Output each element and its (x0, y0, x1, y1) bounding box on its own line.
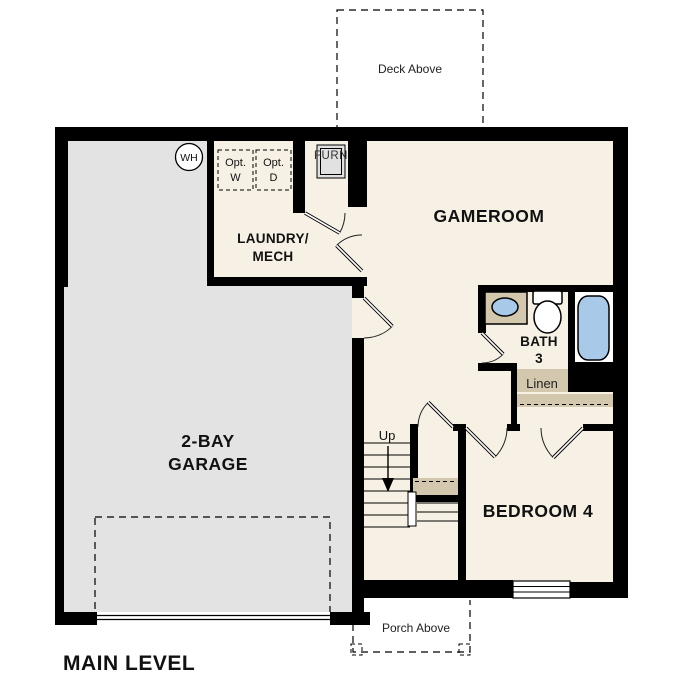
wall-laundry-left (207, 139, 214, 286)
understair-shelf (413, 478, 458, 495)
bedroom-window (513, 581, 570, 598)
bathtub-icon (578, 296, 609, 360)
garage-label-line2: GARAGE (168, 454, 248, 474)
furnace-label: FURN (314, 150, 348, 162)
wall-understair-bottom (410, 495, 458, 502)
wall-right (613, 127, 628, 598)
wall-furnace-left (293, 139, 305, 213)
bath3-label-line2: 3 (535, 351, 543, 366)
opt-washer-line2: W (230, 172, 241, 184)
opt-dryer-line2: D (270, 172, 278, 184)
wall-top (55, 127, 628, 141)
sink-icon (492, 298, 518, 316)
toilet-bowl (534, 301, 561, 333)
wall-garage-bottom-left (55, 612, 97, 625)
wall-tub-divider (568, 285, 575, 362)
wall-left-lower (55, 283, 64, 625)
structural-mass (568, 362, 613, 392)
stair-rail (408, 492, 416, 526)
gameroom-label: GAMEROOM (434, 206, 545, 226)
opt-washer-line1: Opt. (225, 157, 246, 169)
wall-bottom-bedroom (570, 582, 628, 598)
wall-garage-right-upper (352, 283, 364, 298)
wall-furnace-right (348, 139, 367, 207)
wall-laundry-bottom (207, 277, 367, 286)
wall-bedroom-top-stub2 (583, 424, 613, 431)
wall-bottom-entry (358, 580, 513, 598)
wall-left-upper (55, 127, 68, 287)
up-label: Up (379, 428, 396, 443)
plan-title: MAIN LEVEL (63, 652, 195, 675)
wall-linen-left (511, 363, 517, 431)
laundry-label-line1: LAUNDRY/ (237, 231, 309, 246)
porch-label: Porch Above (382, 621, 450, 635)
floor-plan: Deck Above (0, 0, 687, 687)
bedroom4-label: BEDROOM 4 (483, 501, 593, 521)
wall-garage-right-lower (352, 338, 364, 625)
linen-label: Linen (526, 376, 558, 391)
wall-bedroom-top-stub1 (507, 424, 520, 431)
wall-bedroom-left (458, 424, 466, 580)
water-heater-label: WH (180, 152, 198, 164)
bath3-label-line1: BATH (520, 334, 558, 349)
garage-label-line1: 2-BAY (181, 431, 234, 451)
opt-dryer-line1: Opt. (263, 157, 284, 169)
closet-shelf (517, 394, 613, 407)
laundry-label-line2: MECH (253, 249, 294, 264)
garage-door-opening (97, 612, 330, 625)
deck-label: Deck Above (378, 62, 442, 76)
floor-plan-page: Deck Above (0, 0, 687, 687)
